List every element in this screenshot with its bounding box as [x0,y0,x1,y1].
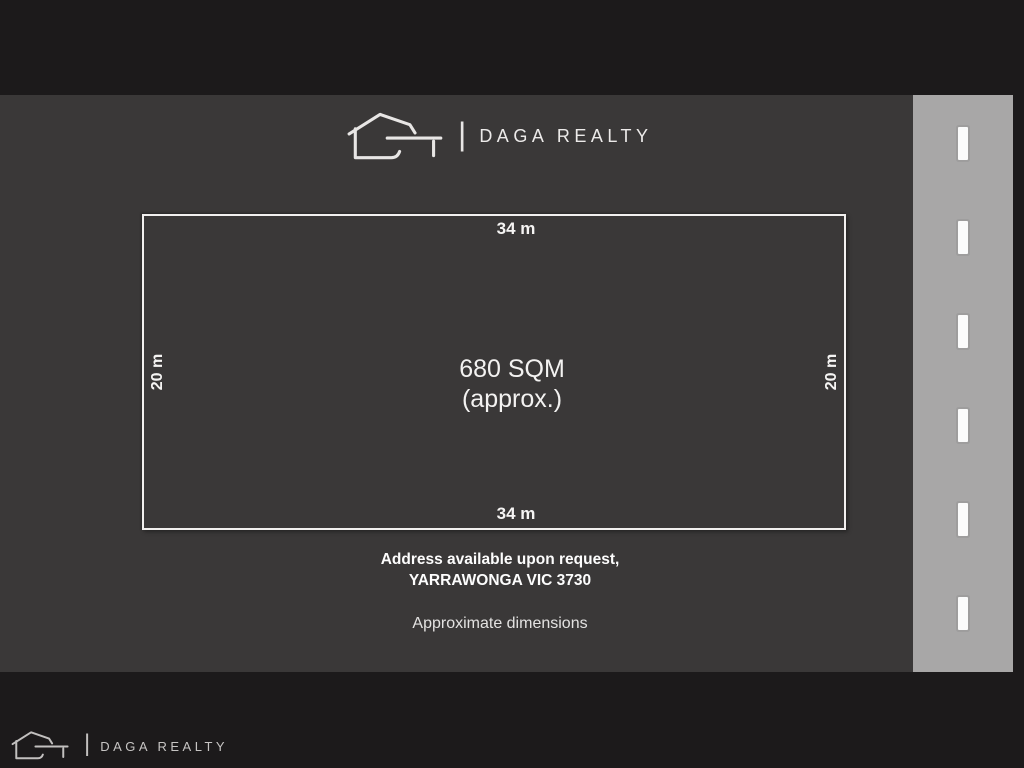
dimension-right: 20 m [823,354,841,390]
area-label: 680 SQM (approx.) [459,354,565,414]
dimension-left: 20 m [149,354,167,390]
land-parcel-outline: 34 m 34 m 20 m 20 m 680 SQM (approx.) [142,214,846,530]
dimension-bottom: 34 m [166,504,866,524]
address-line1: Address available upon request, [0,550,1000,571]
brand-separator: | [84,735,90,754]
house-logo-icon [10,728,72,762]
header-brand: | DAGA REALTY [345,106,653,164]
dimensions-note: Approximate dimensions [0,615,1000,633]
slide: | DAGA REALTY 34 m 34 m 20 m 20 m 680 SQ… [0,0,1024,768]
address-note: Address available upon request, YARRAWON… [0,550,1000,591]
road-lane-marking [958,127,968,160]
brand-name: DAGA REALTY [479,126,652,147]
road-lane-marking [958,315,968,348]
area-qualifier: (approx.) [459,384,565,414]
house-logo-icon [345,107,448,164]
content-panel: | DAGA REALTY 34 m 34 m 20 m 20 m 680 SQ… [0,95,1013,672]
brand-name: DAGA REALTY [100,739,228,754]
dimension-top: 34 m [166,219,866,239]
footer-brand: | DAGA REALTY [10,725,228,765]
brand-separator: | [458,122,466,147]
road-lane-marking [958,503,968,536]
road-lane-marking [958,221,968,254]
area-value: 680 SQM [459,354,565,384]
address-line2: YARRAWONGA VIC 3730 [0,571,1000,592]
road-lane-marking [958,409,968,442]
